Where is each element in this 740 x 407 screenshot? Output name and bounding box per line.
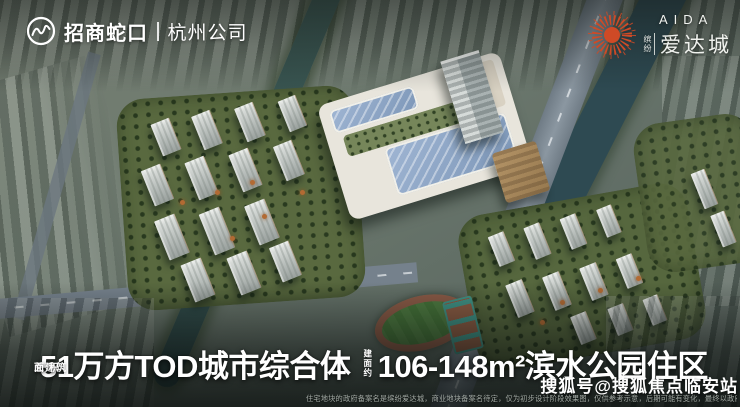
autumn-tree — [215, 190, 220, 195]
logo-divider — [654, 33, 655, 55]
building-tower — [234, 102, 266, 143]
building-tower — [191, 110, 223, 151]
headline-left-label-line2: 面 积 — [34, 363, 60, 375]
brand-name: 招商蛇口 — [64, 17, 148, 46]
autumn-tree — [230, 236, 235, 241]
cmsk-logo-icon — [26, 16, 56, 46]
autumn-tree — [180, 200, 185, 205]
building-tower — [559, 213, 587, 250]
building-tower — [154, 213, 190, 260]
project-logo: AIDA 缤纷 爱达城 — [585, 8, 732, 62]
building-tower — [184, 156, 218, 201]
building-tower — [141, 163, 175, 206]
disclaimer-text: 住宅地块的政府备案名是缤纷爱达城，商业地块备案名待定，仅为初步设计阶段效果图，仅… — [306, 394, 737, 404]
autumn-tree — [262, 214, 267, 219]
building-tower — [150, 117, 181, 156]
project-name-en: AIDA — [659, 12, 732, 27]
autumn-tree — [250, 180, 255, 185]
autumn-tree — [300, 190, 305, 195]
building-tower — [244, 198, 280, 245]
developer-logo: 招商蛇口 杭州公司 — [26, 16, 248, 46]
building-tower — [690, 169, 718, 210]
company-name: 杭州公司 — [168, 18, 248, 45]
building-tower — [710, 210, 737, 247]
building-tower — [228, 148, 262, 193]
promo-image: 招商蛇口 杭州公司 AIDA 缤纷 爱达城 总建筑 面 积 51万方TOD城市综… — [0, 0, 740, 407]
building-tower — [269, 240, 302, 282]
autumn-tree — [636, 276, 641, 281]
sunburst-icon — [585, 8, 639, 62]
headline-right-label: 建面约 — [362, 349, 371, 378]
building-tower — [199, 206, 236, 255]
building-tower — [273, 140, 305, 182]
project-prefix: 缤纷 — [643, 35, 651, 53]
headline-left-title: 51万方TOD城市综合体 — [40, 341, 350, 386]
building-tower — [523, 222, 551, 260]
building-tower — [596, 204, 622, 238]
building-tower — [278, 95, 308, 133]
project-name-cn: 爱达城 — [660, 29, 732, 59]
building-tower — [488, 231, 516, 267]
logo-divider — [157, 22, 159, 41]
